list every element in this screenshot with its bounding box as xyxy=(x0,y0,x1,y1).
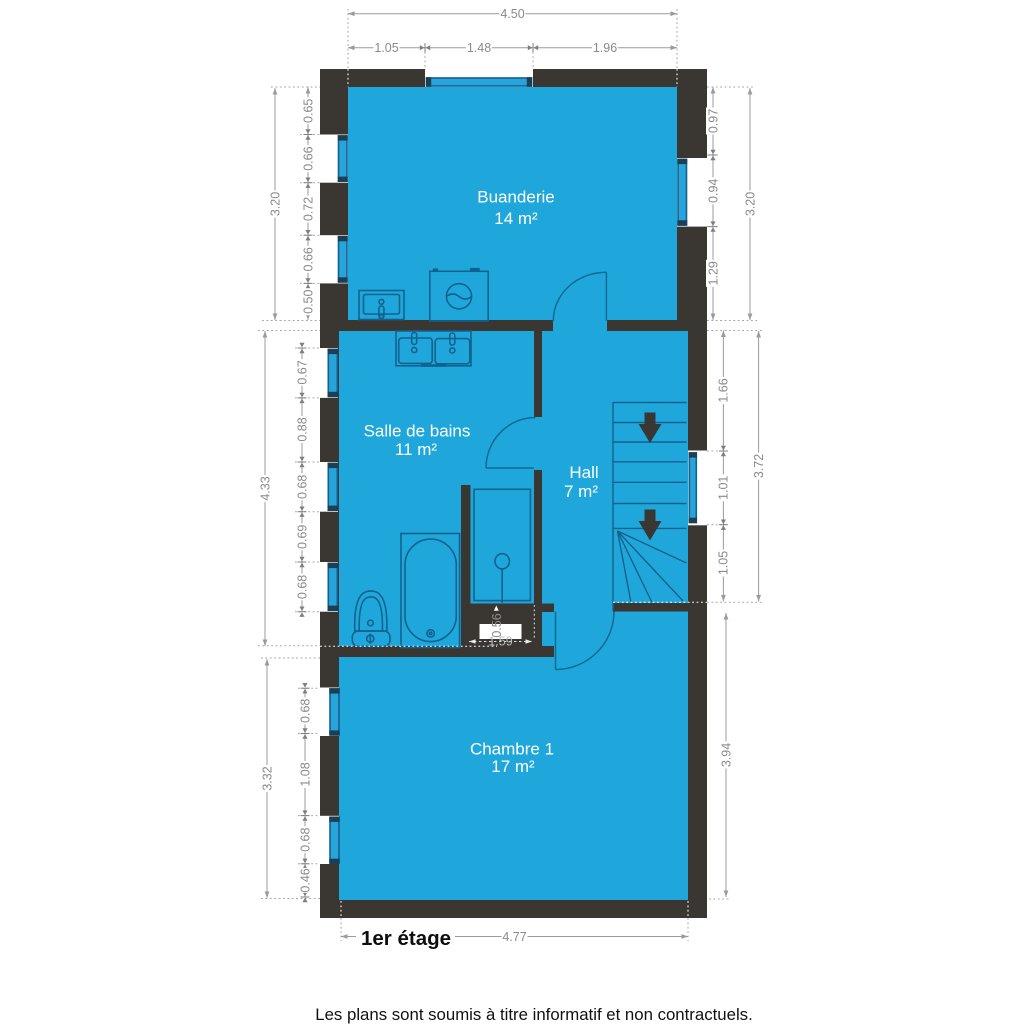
svg-text:1.29: 1.29 xyxy=(706,261,720,285)
svg-text:7 m²: 7 m² xyxy=(564,482,598,501)
svg-text:0.68: 0.68 xyxy=(295,475,309,499)
svg-text:0.97: 0.97 xyxy=(706,109,720,133)
svg-text:0.69: 0.69 xyxy=(295,525,309,549)
svg-text:1.96: 1.96 xyxy=(593,41,617,55)
svg-text:3.32: 3.32 xyxy=(260,766,274,790)
svg-text:0.65: 0.65 xyxy=(301,99,315,123)
svg-text:0.67: 0.67 xyxy=(295,360,309,384)
svg-text:0.66: 0.66 xyxy=(301,146,315,170)
svg-text:Les plans sont soumis à titre: Les plans sont soumis à titre informatif… xyxy=(315,1005,752,1024)
svg-text:0.68: 0.68 xyxy=(298,699,312,723)
svg-text:0.68: 0.68 xyxy=(298,827,312,851)
svg-text:0.68: 0.68 xyxy=(295,575,309,599)
svg-text:14 m²: 14 m² xyxy=(494,209,538,228)
svg-text:Salle de bains: Salle de bains xyxy=(364,422,471,441)
svg-text:Hall: Hall xyxy=(569,463,598,482)
svg-text:1.59: 1.59 xyxy=(488,635,512,649)
svg-text:1.05: 1.05 xyxy=(717,551,731,575)
svg-text:1.01: 1.01 xyxy=(717,476,731,500)
svg-text:1.05: 1.05 xyxy=(374,41,398,55)
svg-text:3.94: 3.94 xyxy=(719,743,733,767)
svg-text:0.50: 0.50 xyxy=(301,289,315,313)
svg-text:0.88: 0.88 xyxy=(295,417,309,441)
svg-text:17 m²: 17 m² xyxy=(491,757,535,776)
svg-text:3.20: 3.20 xyxy=(268,192,282,216)
svg-text:Chambre 1: Chambre 1 xyxy=(470,740,554,759)
svg-text:Buanderie: Buanderie xyxy=(477,188,555,207)
svg-text:0.94: 0.94 xyxy=(706,179,720,203)
svg-text:4.50: 4.50 xyxy=(500,7,524,21)
svg-text:1er étage: 1er étage xyxy=(361,927,451,950)
svg-text:3.72: 3.72 xyxy=(752,454,766,478)
svg-text:0.66: 0.66 xyxy=(301,247,315,271)
svg-text:3.20: 3.20 xyxy=(743,192,757,216)
svg-text:4.77: 4.77 xyxy=(502,930,526,944)
svg-text:0.72: 0.72 xyxy=(301,197,315,221)
svg-text:0.46: 0.46 xyxy=(298,868,312,892)
svg-text:11 m²: 11 m² xyxy=(395,440,438,459)
svg-text:1.48: 1.48 xyxy=(467,41,491,55)
svg-text:4.33: 4.33 xyxy=(258,476,272,500)
svg-text:1.66: 1.66 xyxy=(717,378,731,402)
svg-text:1.08: 1.08 xyxy=(298,762,312,786)
